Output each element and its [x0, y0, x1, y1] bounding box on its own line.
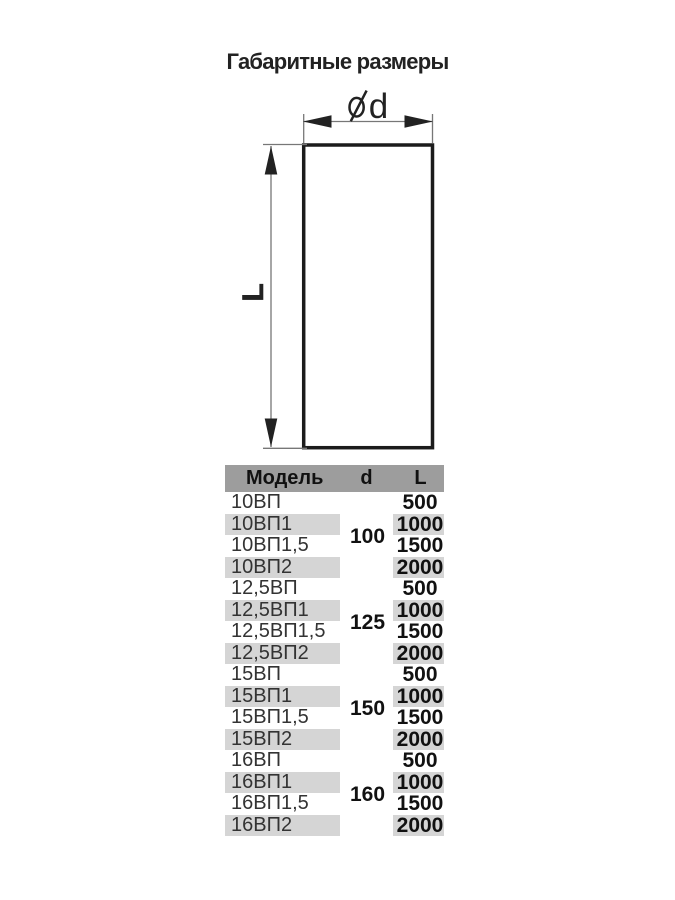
- svg-text:L: L: [237, 283, 270, 301]
- svg-text:d: d: [369, 87, 388, 126]
